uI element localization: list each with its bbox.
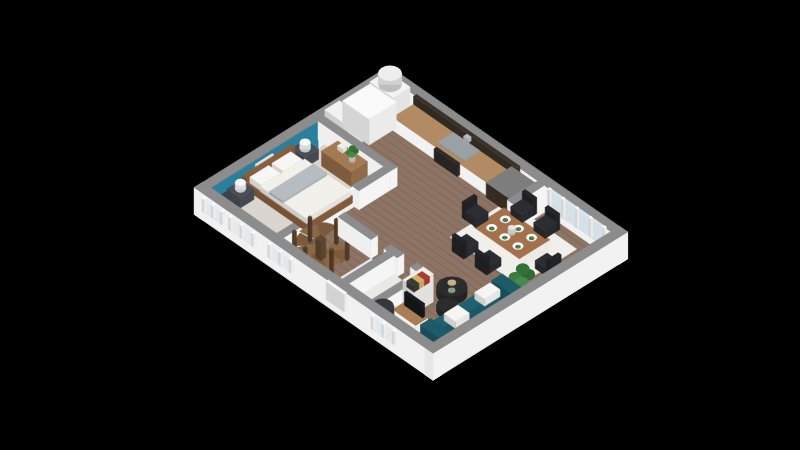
glass-sliding-doors-frame — [561, 198, 563, 218]
water-heater — [378, 66, 402, 82]
bedroom-window-1-frame — [202, 198, 204, 212]
living-window-frame — [384, 323, 387, 338]
living-window-frame — [382, 323, 384, 337]
bedroom-window-1-frame — [220, 211, 222, 225]
bathroom-window-frame — [289, 259, 291, 273]
spiral-staircase-post — [321, 238, 326, 260]
napkin-green — [489, 227, 494, 230]
living-window-frame — [371, 316, 373, 330]
bedroom-window-2-frame — [230, 216, 233, 231]
tv-screen — [423, 304, 425, 318]
bedroom-window-2-frame — [242, 224, 245, 239]
bedroom-window-2-frame — [253, 232, 256, 247]
oven-front — [457, 163, 460, 177]
lamp-left — [300, 138, 311, 145]
napkin-green — [515, 245, 520, 248]
lamp-right — [235, 179, 246, 186]
napkin-green — [502, 236, 507, 239]
bathroom-window-frame — [278, 251, 280, 265]
bedroom-window-2-frame — [240, 225, 242, 239]
floor-plant-foliage — [516, 263, 530, 275]
bedroom-window-1-frame — [213, 204, 216, 219]
napkin-green — [529, 236, 534, 239]
dresser-plant-foliage — [348, 152, 355, 158]
dining-chair-5-back — [487, 257, 490, 275]
floor-plan-render — [0, 0, 800, 450]
bathroom-window-frame — [268, 244, 270, 258]
spiral-staircase-baluster — [334, 219, 336, 244]
coffee-table-large — [436, 276, 467, 296]
bedroom-window-1-frame — [222, 211, 225, 226]
living-window-frame — [394, 330, 397, 345]
bathroom-window-frame — [291, 258, 294, 273]
bathroom-window-frame — [280, 251, 283, 266]
dresser-plant-foliage — [349, 145, 356, 151]
living-window-frame — [373, 315, 376, 330]
glass-sliding-doors-frame — [575, 208, 577, 228]
napkin-green — [516, 227, 521, 230]
dining-chair-4-back — [464, 241, 467, 259]
glass-sliding-doors-frame — [589, 217, 591, 237]
napkin-green — [503, 218, 508, 221]
bedroom-window-1-frame — [211, 205, 213, 219]
bedroom-window-2-frame — [228, 217, 230, 231]
coffee-table-decor-1 — [448, 280, 456, 285]
spiral-staircase-post — [316, 238, 321, 260]
living-window-frame — [392, 331, 394, 345]
apartment-3d-floor-plan — [0, 0, 800, 450]
spiral-staircase-baluster — [308, 217, 310, 242]
coffee-table-decor-2 — [448, 288, 455, 293]
bedroom-window-2-frame — [251, 233, 253, 247]
bedroom-window-1-frame — [204, 198, 207, 213]
front-door — [344, 293, 346, 312]
bathroom-window-frame — [270, 244, 273, 259]
pitcher — [508, 225, 515, 230]
